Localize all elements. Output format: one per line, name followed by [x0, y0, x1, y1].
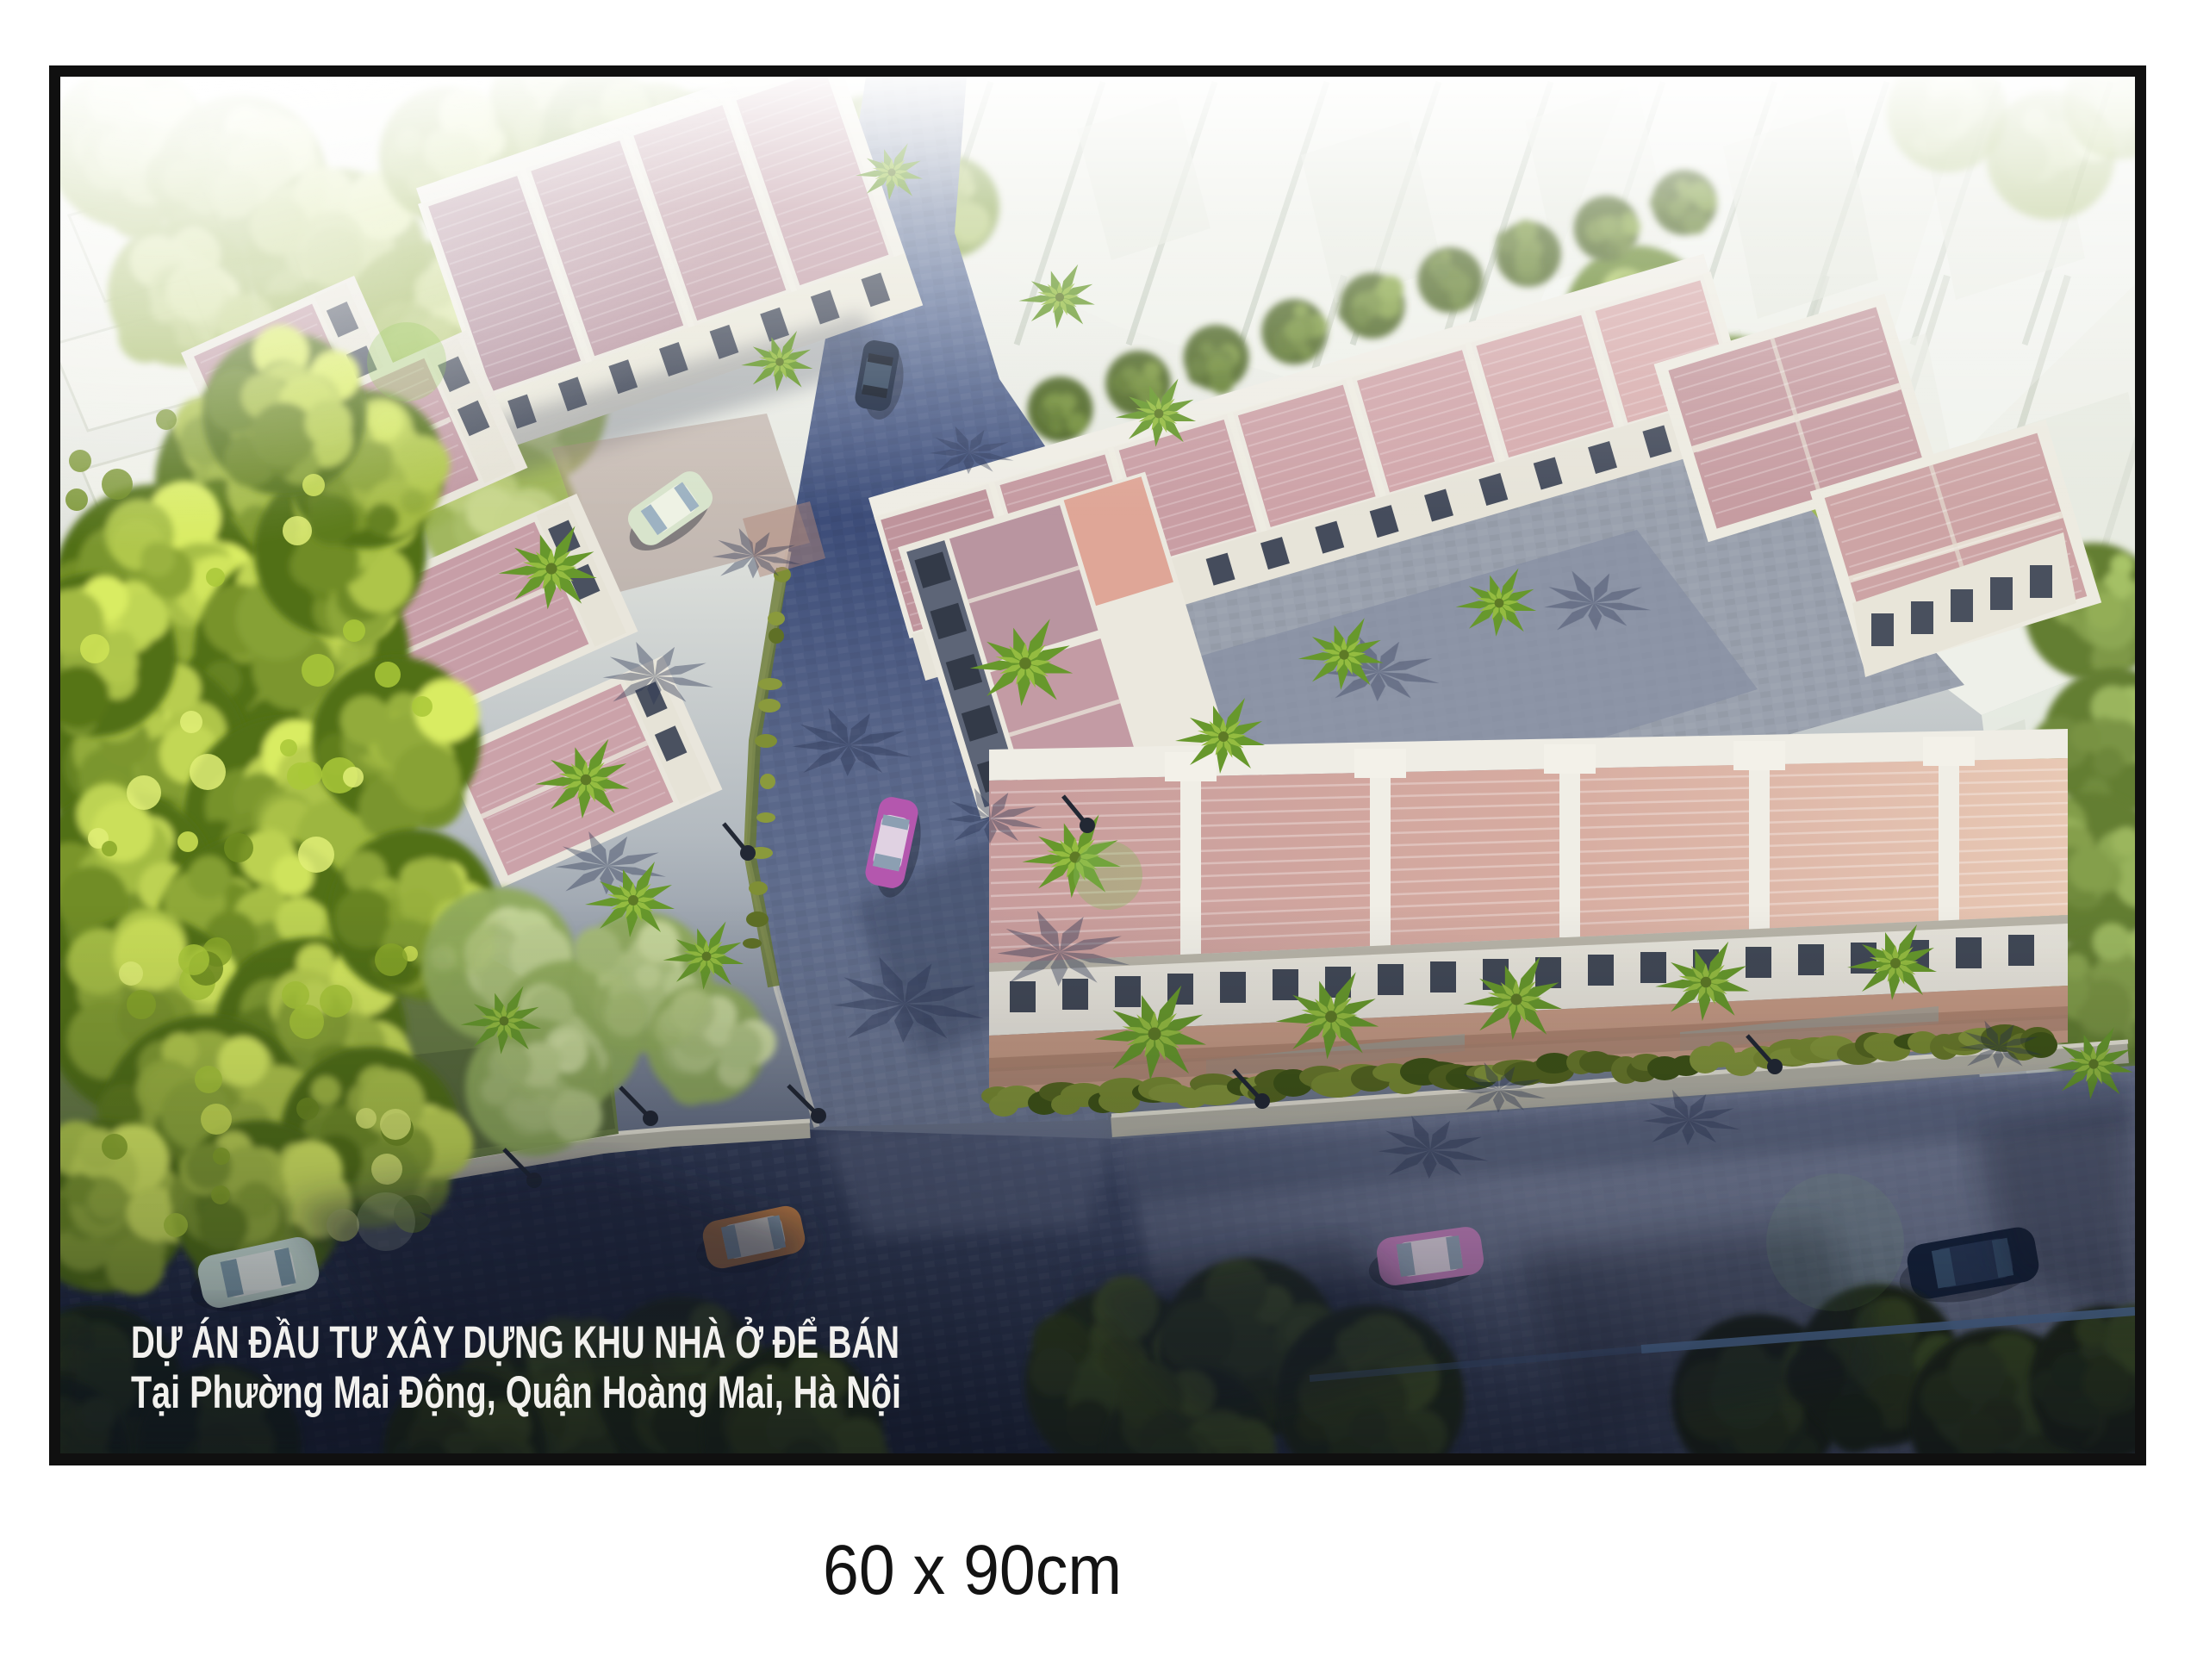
svg-text:Tại Phường Mai Động, Quận Hoàn: Tại Phường Mai Động, Quận Hoàng Mai, Hà … — [131, 1367, 901, 1418]
svg-text:DỰ ÁN ĐẦU TƯ XÂY DỰNG KHU NHÀ: DỰ ÁN ĐẦU TƯ XÂY DỰNG KHU NHÀ Ở ĐỂ BÁN — [131, 1316, 899, 1368]
svg-text:60 x 90cm: 60 x 90cm — [823, 1531, 1122, 1609]
